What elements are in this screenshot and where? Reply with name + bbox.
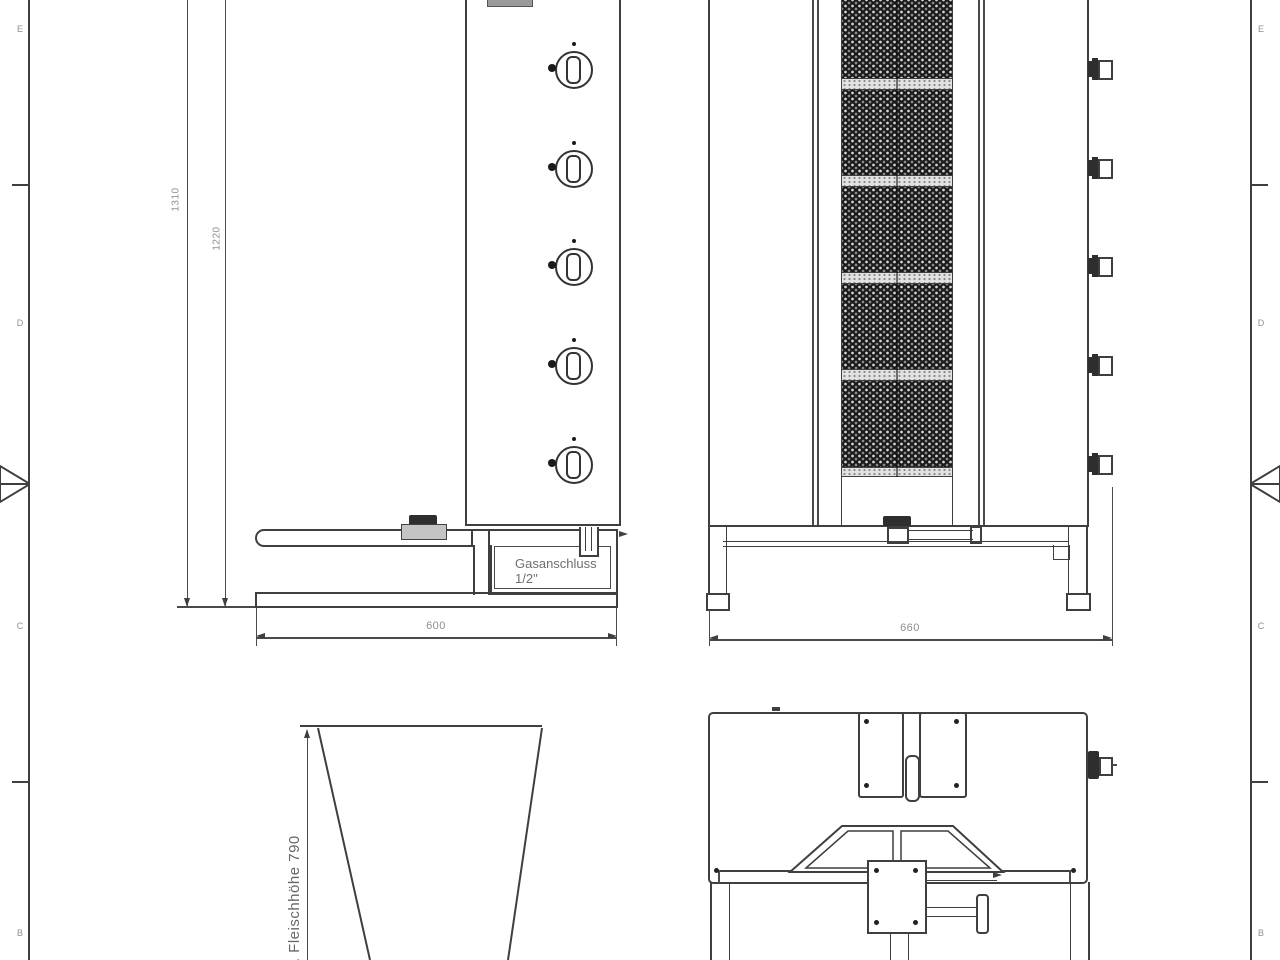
knob-slot xyxy=(566,451,581,479)
knob-index-dot xyxy=(572,239,576,243)
frame-center-mark-right xyxy=(1250,464,1280,504)
side-valve-knob xyxy=(1088,751,1099,779)
dim-660-arrow-right xyxy=(1103,635,1112,641)
knob-index-dot xyxy=(572,437,576,441)
front-wall-left xyxy=(708,0,710,527)
base-plate xyxy=(255,592,618,608)
center-post-bottom xyxy=(890,932,909,960)
plate-screw-2 xyxy=(954,719,959,724)
knob-pointer-dot xyxy=(548,163,556,171)
valve-cap xyxy=(1098,159,1113,179)
gas-pipe-inner xyxy=(585,527,592,551)
front-inner-right-b xyxy=(983,0,985,527)
dim-line-1220 xyxy=(225,0,226,607)
cone-dim-arrow xyxy=(304,729,310,738)
gas-connection-label-line2: 1/2" xyxy=(515,571,575,586)
leg-left xyxy=(708,527,727,593)
dim-600-line xyxy=(256,637,617,639)
frame-tick-left-2 xyxy=(12,781,28,783)
burner-center-divider xyxy=(896,0,898,477)
dim-660-arrow-left xyxy=(709,635,718,641)
front-inner-right-a xyxy=(978,0,980,527)
dim-label-1310: 1310 xyxy=(171,182,182,218)
control-panel-outline xyxy=(465,0,621,526)
valve-cap xyxy=(1098,356,1113,376)
handle-bar xyxy=(976,894,989,934)
knob-slot xyxy=(566,352,581,380)
knob-index-dot xyxy=(572,42,576,46)
step-screw-left xyxy=(714,868,719,873)
row-label-left-D: D xyxy=(14,318,26,328)
meat-cone-outline xyxy=(290,720,550,960)
row-label-right-C: C xyxy=(1255,621,1267,631)
row-label-left-E: E xyxy=(14,24,26,34)
plate-screw-1 xyxy=(864,719,869,724)
motor-plate-screw-2 xyxy=(913,868,918,873)
dim-line-1310 xyxy=(187,0,188,607)
dim-600-arrow-right xyxy=(608,633,617,639)
valve-cap xyxy=(1098,455,1113,475)
motor-shaft xyxy=(907,530,973,540)
leg-right xyxy=(1068,527,1088,593)
knob-pointer-dot xyxy=(548,459,556,467)
dim-baseline xyxy=(177,606,256,608)
valve-cap xyxy=(1098,60,1113,80)
front-inner-left-b xyxy=(817,0,819,527)
motor-plate-screw-4 xyxy=(913,920,918,925)
rail-clamp-body xyxy=(401,524,447,540)
motor-plate-screw-3 xyxy=(874,920,879,925)
row-label-right-B: B xyxy=(1255,928,1267,938)
dim-label-1220: 1220 xyxy=(212,221,223,257)
knob-pointer-dot xyxy=(548,64,556,72)
side-valve-tick xyxy=(1112,764,1117,766)
frame-tick-right-2 xyxy=(1252,781,1268,783)
knob-pointer-dot xyxy=(548,261,556,269)
knob-slot xyxy=(566,155,581,183)
plate-screw-4 xyxy=(954,783,959,788)
burner-column xyxy=(841,0,953,527)
top-edge-tick xyxy=(772,707,780,711)
rail-bottom-right xyxy=(1070,882,1090,960)
row-label-right-E: E xyxy=(1255,24,1267,34)
drawing-sheet: E D C B E D C B 1310 1220 xyxy=(0,0,1280,960)
step-screw-right xyxy=(1071,868,1076,873)
dim-600-arrow-left xyxy=(256,633,265,639)
gas-connection-label-line1: Gasanschluss xyxy=(515,556,615,571)
panel-top-stub xyxy=(487,0,533,7)
center-slot xyxy=(905,755,920,802)
row-label-left-C: C xyxy=(14,621,26,631)
dim-660-ext-right xyxy=(1112,487,1113,646)
knob-slot xyxy=(566,56,581,84)
front-gas-fitting xyxy=(1053,545,1070,560)
dim-660-line xyxy=(709,639,1112,641)
gas-rod xyxy=(927,871,997,881)
mount-plate-right xyxy=(919,712,967,798)
foot-right xyxy=(1066,593,1091,611)
row-label-left-B: B xyxy=(14,928,26,938)
side-valve-cap xyxy=(1099,757,1113,776)
cone-height-label: max. Fleischhöhe 790 xyxy=(286,835,303,960)
motor-shaft-end xyxy=(970,526,982,544)
knob-pointer-dot xyxy=(548,360,556,368)
frame-tick-left-1 xyxy=(12,184,28,186)
dim-label-600: 600 xyxy=(416,620,456,632)
rail-bottom-left xyxy=(710,882,730,960)
handle-rod xyxy=(927,907,978,917)
motor-plate-screw-1 xyxy=(874,868,879,873)
plate-screw-3 xyxy=(864,783,869,788)
dim-label-660: 660 xyxy=(890,622,930,634)
valve-cap xyxy=(1098,257,1113,277)
knob-index-dot xyxy=(572,141,576,145)
motor-body xyxy=(887,527,909,544)
cone-dim-line xyxy=(307,731,308,960)
knob-slot xyxy=(566,253,581,281)
row-label-right-D: D xyxy=(1255,318,1267,328)
frame-center-mark-left xyxy=(0,464,30,504)
knob-index-dot xyxy=(572,338,576,342)
front-inner-left-a xyxy=(812,0,814,527)
frame-tick-right-1 xyxy=(1252,184,1268,186)
motor-clamp xyxy=(883,516,911,526)
dim-600-ext-right xyxy=(616,608,617,646)
gas-rod-tip xyxy=(993,872,1002,878)
datum-arrow xyxy=(619,531,628,537)
dim-600-ext-left xyxy=(256,608,257,646)
foot-left xyxy=(706,593,730,611)
